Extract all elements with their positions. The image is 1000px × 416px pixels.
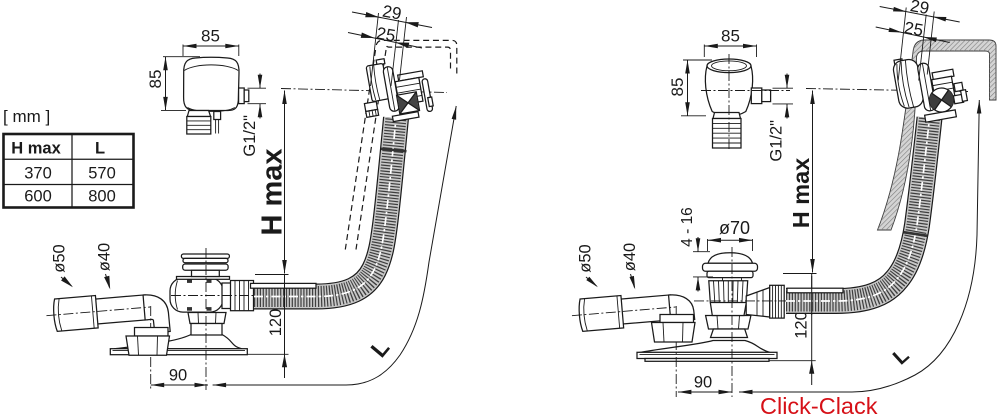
svg-text:29: 29 [909, 0, 931, 18]
svg-text:85: 85 [146, 70, 165, 89]
svg-text:L: L [95, 140, 105, 158]
svg-text:370: 370 [24, 165, 52, 183]
svg-text:85: 85 [721, 27, 740, 46]
svg-text:ø40: ø40 [621, 243, 639, 271]
svg-text:90: 90 [694, 374, 712, 392]
svg-text:25: 25 [375, 24, 397, 46]
svg-text:25: 25 [903, 18, 925, 40]
svg-text:ø40: ø40 [96, 243, 114, 271]
svg-text:120: 120 [793, 311, 811, 339]
svg-text:H max: H max [11, 140, 61, 158]
svg-text:85: 85 [201, 27, 220, 46]
svg-text:800: 800 [88, 188, 116, 206]
svg-text:120: 120 [267, 309, 285, 337]
svg-text:29: 29 [381, 2, 403, 24]
svg-text:ø50: ø50 [51, 244, 69, 272]
svg-text:G1/2": G1/2" [768, 120, 786, 162]
svg-text:Click-Clack: Click-Clack [760, 393, 878, 416]
svg-text:[ mm ]: [ mm ] [3, 107, 50, 126]
svg-text:600: 600 [24, 188, 52, 206]
svg-text:ø50: ø50 [577, 244, 595, 272]
svg-text:85: 85 [668, 78, 687, 97]
svg-text:4 - 16: 4 - 16 [679, 207, 696, 247]
svg-text:570: 570 [88, 165, 116, 183]
svg-text:H max: H max [788, 158, 814, 229]
svg-text:90: 90 [169, 367, 187, 385]
svg-text:H max: H max [257, 148, 289, 235]
svg-text:ø70: ø70 [719, 218, 750, 238]
